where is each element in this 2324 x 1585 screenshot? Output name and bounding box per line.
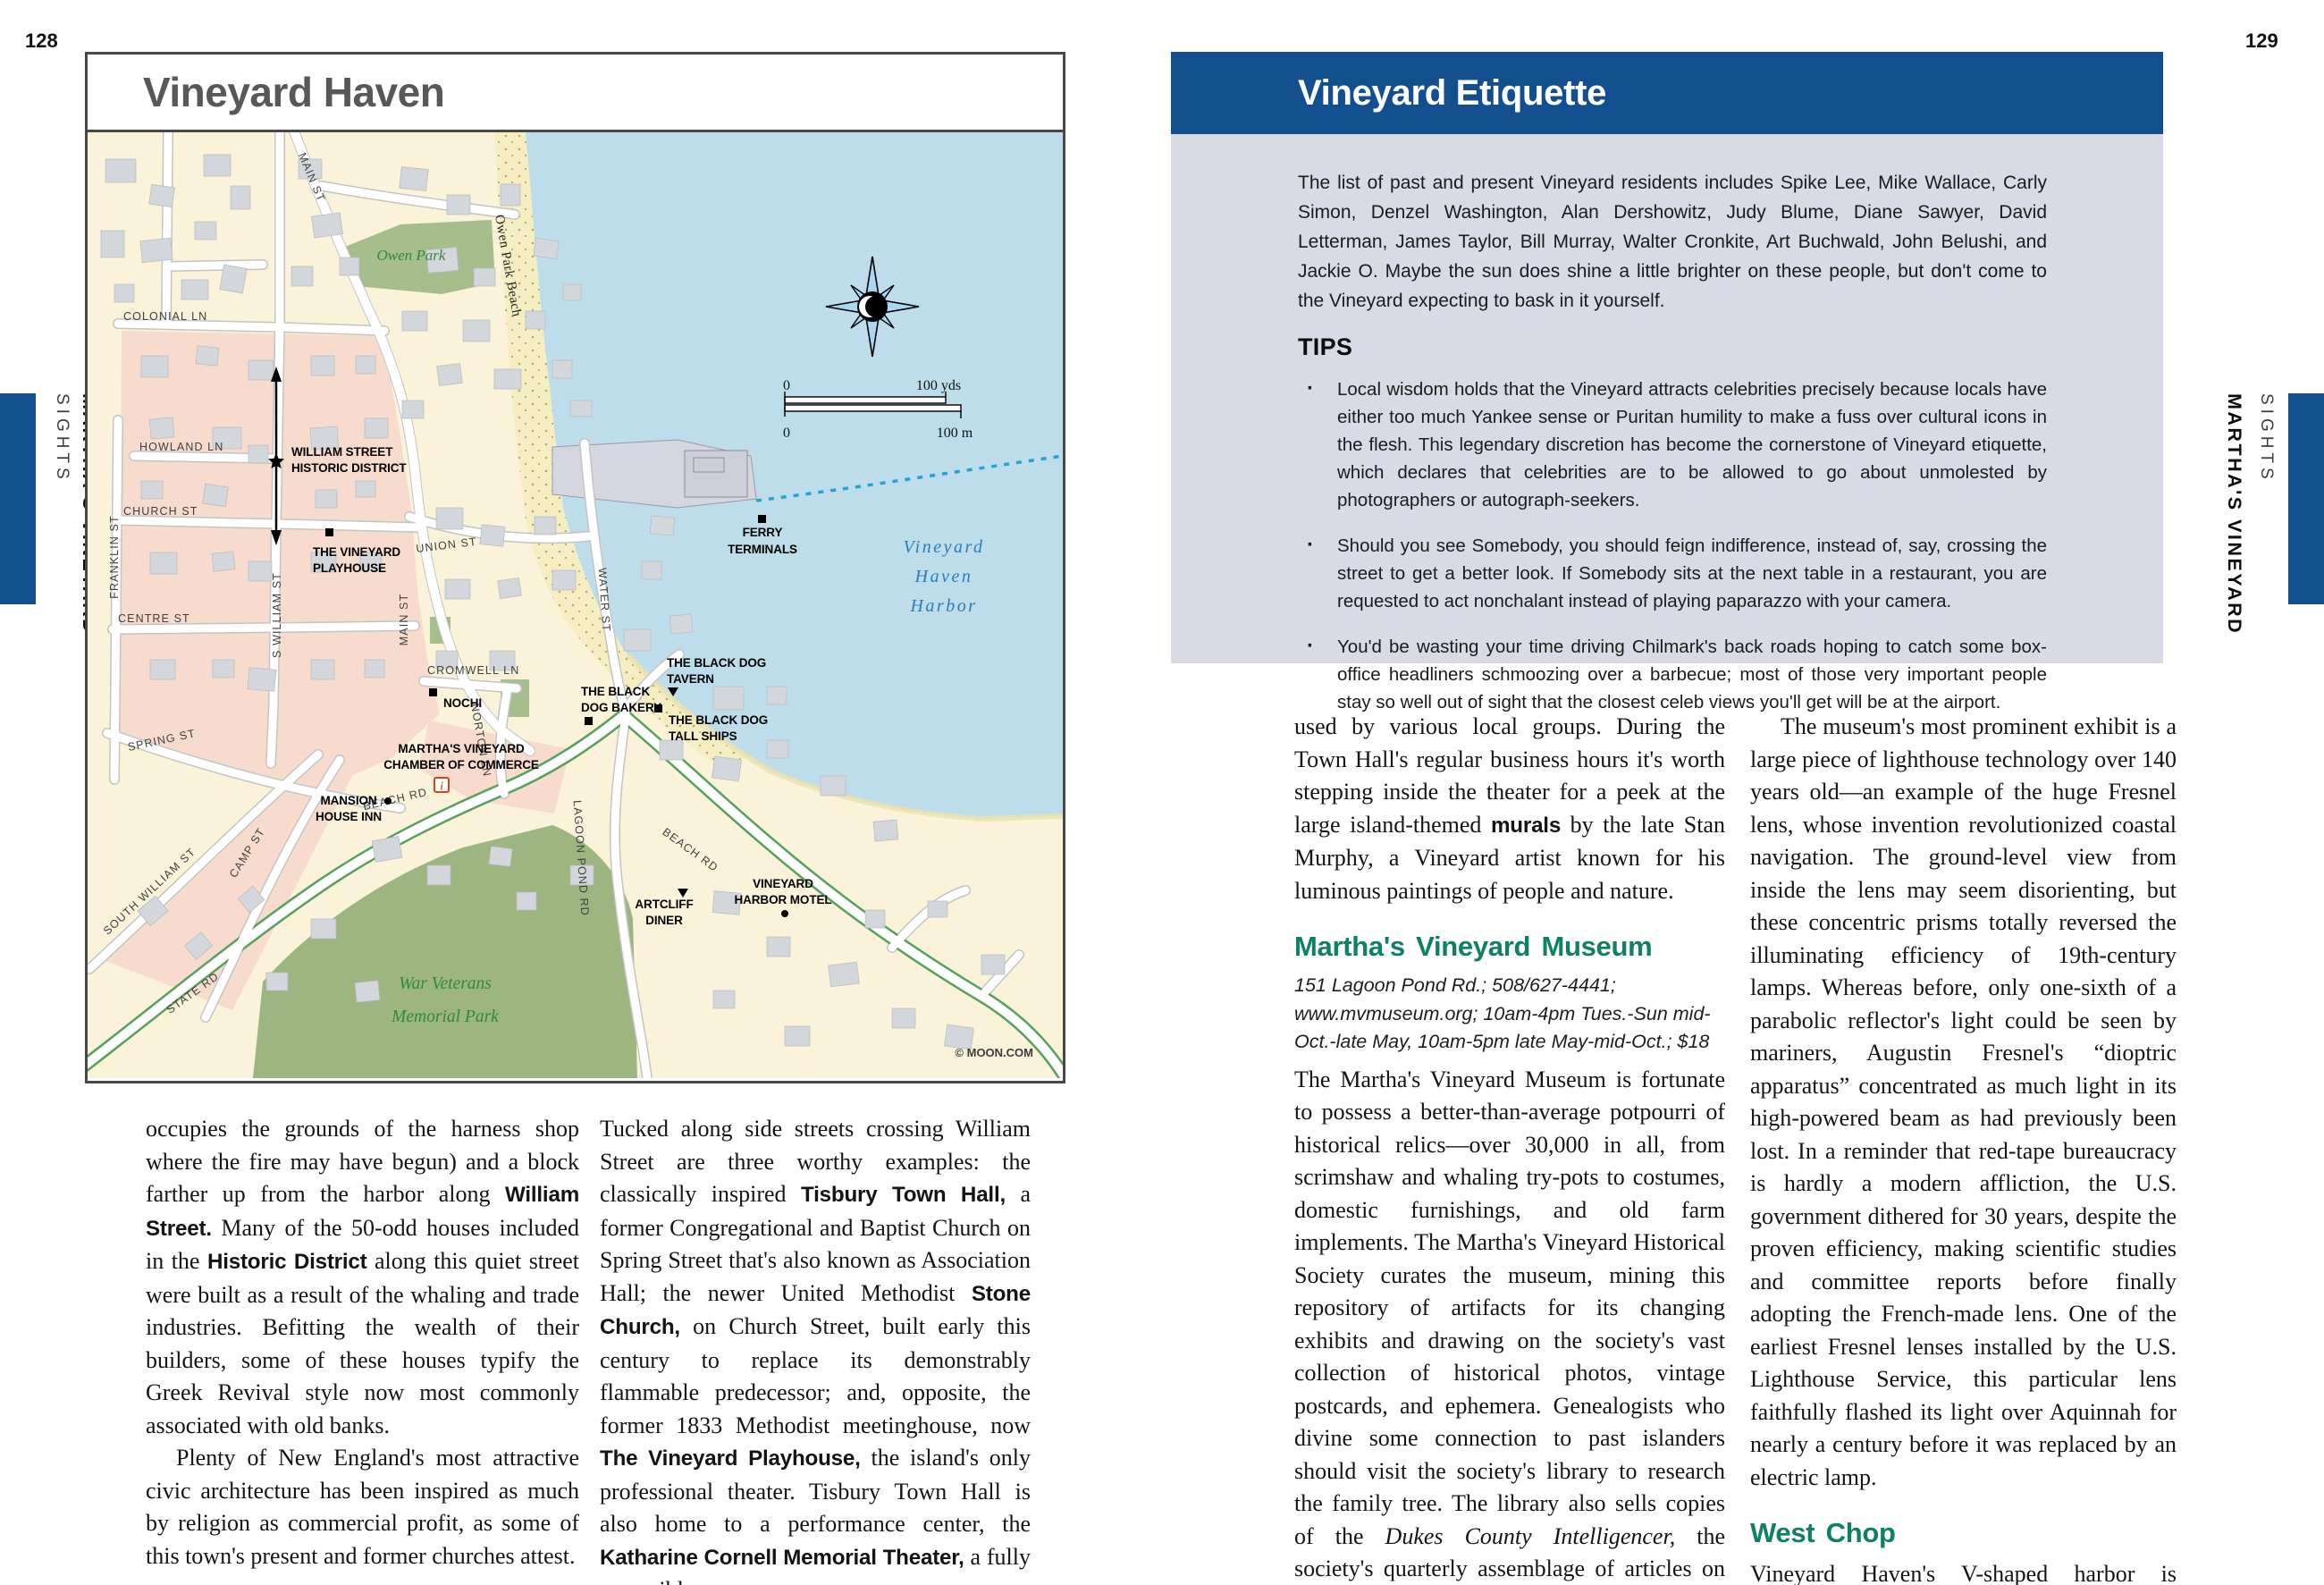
info-icon: i <box>434 778 449 793</box>
street-main-lower: MAIN ST <box>398 594 410 645</box>
poi-mansion-line1: MANSION <box>320 794 376 807</box>
page-number-right: 129 <box>2245 30 2278 53</box>
poi-bakery-line2: DOG BAKERY <box>581 701 661 714</box>
square-marker-ferry <box>758 515 766 523</box>
left-column-2: Tucked along side streets crossing Willi… <box>600 1113 1031 1585</box>
poi-historic-line1: WILLIAM STREET <box>291 445 393 459</box>
scale-100-yds: 100 yds <box>916 378 961 393</box>
dot-marker-mansion <box>384 797 392 805</box>
label-war-memorial-line2: Memorial Park <box>391 1007 499 1026</box>
paragraph: occupies the grounds of the harness shop… <box>146 1113 579 1442</box>
paragraph: Tucked along side streets crossing Willi… <box>600 1113 1031 1585</box>
etiquette-title: Vineyard Etiquette <box>1298 73 1606 114</box>
left-page-columns: occupies the grounds of the harness shop… <box>146 1113 1031 1585</box>
paragraph: used by various local groups. During the… <box>1294 711 1725 907</box>
street-franklin: FRANKLIN ST <box>108 515 121 598</box>
poi-tallships-line2: TALL SHIPS <box>669 729 737 743</box>
heading-mv-museum: Martha's Vineyard Museum <box>1294 931 1725 963</box>
paragraph: The museum's most prominent exhibit is a… <box>1750 711 2177 1494</box>
street-colonial: COLONIAL LN <box>123 310 207 323</box>
label-harbor-line3: Harbor <box>909 596 977 616</box>
section-label-right: SIGHTS <box>2256 393 2276 484</box>
paragraph: The Martha's Vineyard Museum is fortunat… <box>1294 1064 1725 1585</box>
poi-artcliff-line1: ARTCLIFF <box>635 898 693 911</box>
poi-artcliff-line2: DINER <box>645 914 683 927</box>
poi-tallships-line1: THE BLACK DOG <box>669 713 768 727</box>
heading-west-chop: West Chop <box>1750 1517 2177 1549</box>
poi-chamber-line1: MARTHA'S VINEYARD <box>398 742 525 755</box>
street-church: CHURCH ST <box>123 505 198 518</box>
poi-mansion-line2: HOUSE INN <box>316 810 382 823</box>
square-marker-bakery <box>585 717 593 725</box>
scale-100-m: 100 m <box>937 426 973 441</box>
square-marker-tallships <box>654 704 662 712</box>
street-howland: HOWLAND LN <box>139 441 223 453</box>
poi-ferry-line1: FERRY <box>743 526 783 539</box>
svg-text:i: i <box>440 780 443 793</box>
poi-chamber-line2: CHAMBER OF COMMERCE <box>383 758 539 771</box>
etiquette-box: The list of past and present Vineyard re… <box>1171 134 2163 663</box>
right-column-2: The museum's most prominent exhibit is a… <box>1750 711 2177 1585</box>
poi-playhouse-line2: PLAYHOUSE <box>313 561 386 575</box>
page-number-left: 128 <box>25 30 58 53</box>
map-title: Vineyard Haven <box>88 55 1063 132</box>
tips-list: Local wisdom holds that the Vineyard att… <box>1298 375 2047 716</box>
label-owen-park: Owen Park <box>377 247 446 264</box>
chapter-label-right: MARTHA'S VINEYARD <box>2223 393 2245 635</box>
section-label-left: SIGHTS <box>52 393 72 484</box>
tip-item: You'd be wasting your time driving Chilm… <box>1298 633 2047 716</box>
tip-item: Local wisdom holds that the Vineyard att… <box>1298 375 2047 514</box>
book-spread: 128 129 SIGHTS MARTHA'S VINEYARD MARTHA'… <box>0 0 2324 1585</box>
etiquette-header: Vineyard Etiquette <box>1171 52 2163 134</box>
paragraph: Plenty of New England's most attractive … <box>146 1442 579 1572</box>
etiquette-intro: The list of past and present Vineyard re… <box>1298 168 2047 316</box>
chapter-tab-bar-left <box>0 393 36 604</box>
poi-playhouse-line1: THE VINEYARD <box>313 545 400 559</box>
label-harbor-line1: Vineyard <box>903 537 984 557</box>
scale-zero-yds: 0 <box>783 378 790 393</box>
poi-nochi: NOCHI <box>443 696 482 710</box>
poi-tavern-line1: THE BLACK DOG <box>667 656 766 670</box>
map-vineyard-haven: Vineyard Haven <box>85 52 1065 1083</box>
map-canvas: 0 100 yds 0 100 m MAIN ST MAIN ST COLONI… <box>88 132 1063 1078</box>
street-cromwell: CROMWELL LN <box>427 664 519 677</box>
chapter-tab-bar-right <box>2288 393 2324 604</box>
tips-heading: TIPS <box>1298 333 2047 361</box>
poi-tavern-line2: TAVERN <box>667 672 714 686</box>
poi-ferry-line2: TERMINALS <box>728 543 797 556</box>
poi-bakery-line1: THE BLACK <box>581 685 650 698</box>
poi-motel-line2: HARBOR MOTEL <box>734 893 831 906</box>
right-page-columns: used by various local groups. During the… <box>1294 711 2179 1585</box>
left-column-1: occupies the grounds of the harness shop… <box>146 1113 579 1585</box>
poi-historic-line2: HISTORIC DISTRICT <box>291 461 407 475</box>
tip-item: Should you see Somebody, you should feig… <box>1298 532 2047 615</box>
paragraph: Vineyard Haven's V-shaped harbor is prot… <box>1750 1558 2177 1585</box>
square-marker-playhouse <box>325 528 333 536</box>
street-s-william: S WILLIAM ST <box>271 572 283 658</box>
poi-motel-line1: VINEYARD <box>753 877 813 890</box>
label-harbor-line2: Haven <box>914 567 973 586</box>
dot-marker-motel <box>781 910 788 917</box>
street-centre: CENTRE ST <box>118 612 190 625</box>
label-war-memorial-line1: War Veterans <box>399 974 492 993</box>
scale-zero-m: 0 <box>783 426 790 441</box>
right-column-1: used by various local groups. During the… <box>1294 711 1725 1585</box>
museum-info-line: 151 Lagoon Pond Rd.; 508/627-4441; www.m… <box>1294 972 1725 1057</box>
square-marker-nochi <box>429 688 437 696</box>
map-copyright: © MOON.COM <box>955 1046 1033 1059</box>
